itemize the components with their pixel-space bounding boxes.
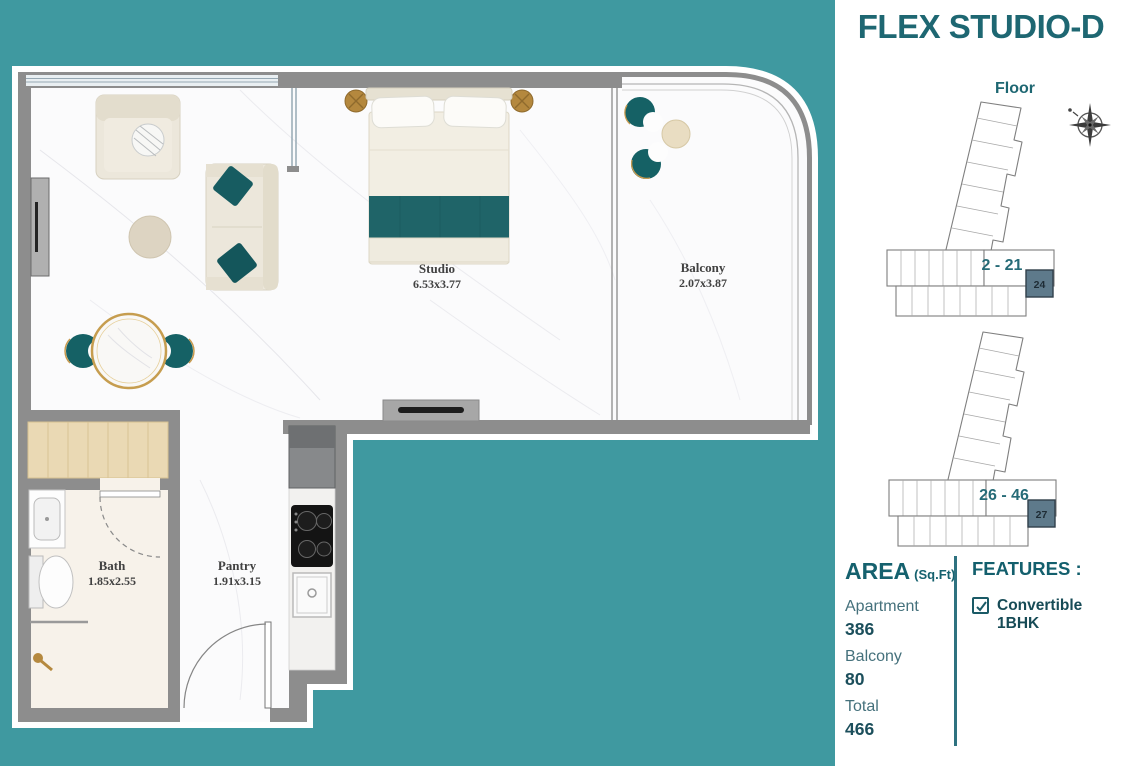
bath-sink xyxy=(29,490,65,548)
bath-label: Bath xyxy=(99,558,127,573)
sofa xyxy=(206,164,278,290)
pantry-dims: 1.91x3.15 xyxy=(213,574,261,588)
throw-blanket xyxy=(132,124,164,156)
coffee-table xyxy=(129,216,171,258)
floor-range-1: 2 - 21 xyxy=(982,257,1023,274)
wall-sconce-right xyxy=(511,90,533,112)
balcony-table xyxy=(662,120,690,148)
bed-blanket xyxy=(369,196,509,238)
page-title: FLEX STUDIO-D xyxy=(835,8,1127,46)
area-unit-suffix: (Sq.Ft) xyxy=(914,567,955,582)
balcony-label: Balcony xyxy=(681,260,726,275)
wall-sconce-left xyxy=(345,90,367,112)
bed xyxy=(345,88,533,264)
wardrobe xyxy=(28,422,168,478)
area-row-label: Total xyxy=(845,698,879,716)
kitchen-sink xyxy=(293,573,331,617)
pantry-label: Pantry xyxy=(218,558,257,573)
balcony-dims: 2.07x3.87 xyxy=(679,276,727,290)
tv-console xyxy=(383,400,479,421)
feature-item: Convertible 1BHK xyxy=(997,597,1127,633)
area-row-value: 386 xyxy=(845,619,874,640)
building-stack-2: 26 - 46 27 xyxy=(888,330,1060,556)
highlighted-unit-2: 27 xyxy=(1036,509,1048,521)
compass-icon xyxy=(1066,100,1114,148)
highlighted-unit-1: 24 xyxy=(1034,279,1046,291)
area-row-value: 466 xyxy=(845,719,874,740)
area-row-label: Balcony xyxy=(845,648,902,666)
studio-dims: 6.53x3.77 xyxy=(413,277,461,291)
area-title: AREA xyxy=(845,558,910,584)
floor-plan: Studio 6.53x3.77 Balcony 2.07x3.87 Bath … xyxy=(0,0,835,766)
armchair xyxy=(96,95,180,179)
building-stack-1: 2 - 21 24 xyxy=(886,100,1058,326)
kitchenette xyxy=(289,426,335,670)
floor-section-label: Floor xyxy=(960,80,1070,98)
toilet xyxy=(29,556,73,608)
area-row-label: Apartment xyxy=(845,598,919,616)
wall-cabinet xyxy=(31,178,49,276)
window xyxy=(26,75,278,86)
area-heading: AREA(Sq.Ft) xyxy=(845,558,955,585)
features-heading: FEATURES : xyxy=(972,558,1082,580)
area-row-value: 80 xyxy=(845,669,864,690)
bath-dims: 1.85x2.55 xyxy=(88,574,136,588)
stove xyxy=(291,505,333,567)
floor-range-2: 26 - 46 xyxy=(979,487,1029,504)
section-divider xyxy=(954,556,957,746)
studio-label: Studio xyxy=(419,261,455,276)
dining-table xyxy=(92,314,166,388)
checkbox-icon xyxy=(972,597,989,614)
brochure-page: Studio 6.53x3.77 Balcony 2.07x3.87 Bath … xyxy=(0,0,1127,766)
